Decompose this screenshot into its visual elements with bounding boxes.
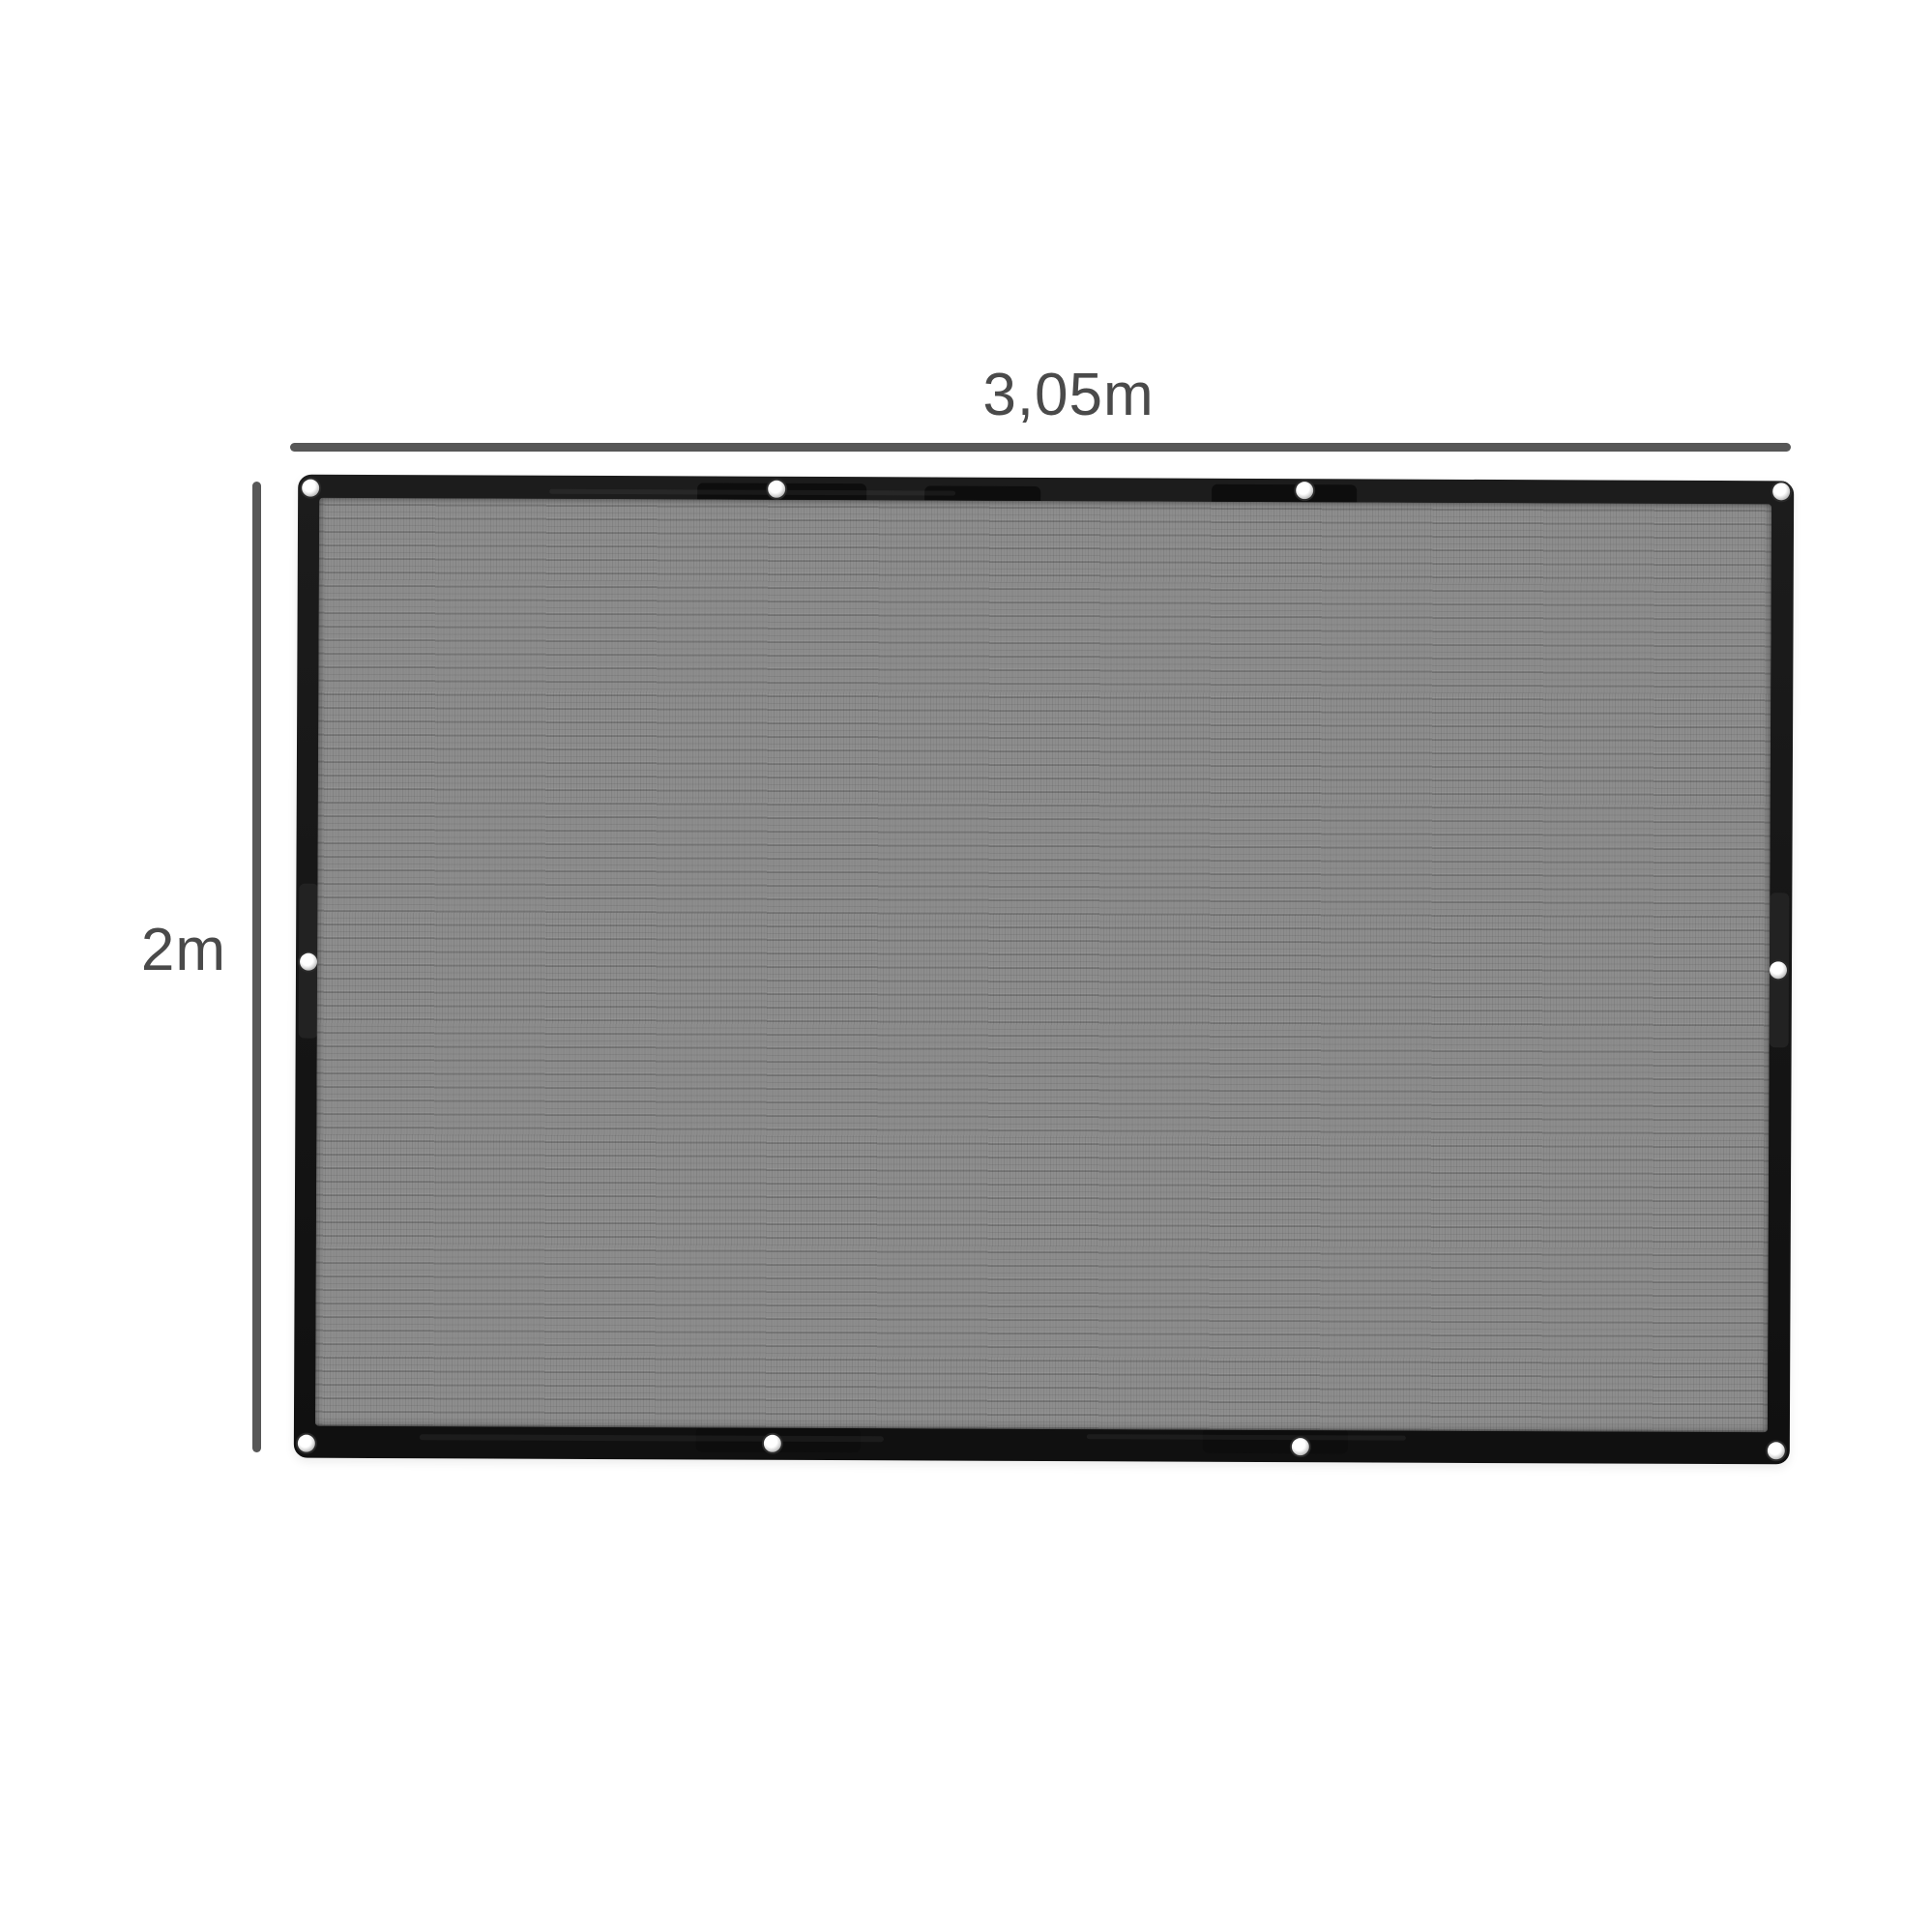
grommet: [768, 481, 785, 498]
width-dimension-line: [290, 443, 1791, 452]
strap-patch: [1203, 1428, 1348, 1454]
width-dimension-label: 3,05m: [875, 366, 1262, 425]
frame-streak: [420, 1434, 884, 1442]
grommet: [1770, 961, 1787, 979]
height-dimension-label: 2m: [87, 921, 280, 981]
grommet: [300, 953, 317, 971]
mesh-screen: [294, 475, 1794, 1465]
mesh-fabric: [315, 498, 1771, 1433]
height-dimension-line: [252, 482, 261, 1452]
grommet: [1768, 1442, 1785, 1459]
frame-streak: [1087, 1434, 1406, 1440]
frame-streak: [549, 489, 955, 496]
grommet: [764, 1435, 781, 1452]
grommet: [1292, 1438, 1309, 1455]
grommet: [1772, 483, 1790, 500]
grommet: [298, 1435, 315, 1452]
grommet: [1296, 482, 1313, 499]
grommet: [302, 480, 319, 497]
product-dimension-diagram: 3,05m 2m: [0, 0, 1932, 1932]
